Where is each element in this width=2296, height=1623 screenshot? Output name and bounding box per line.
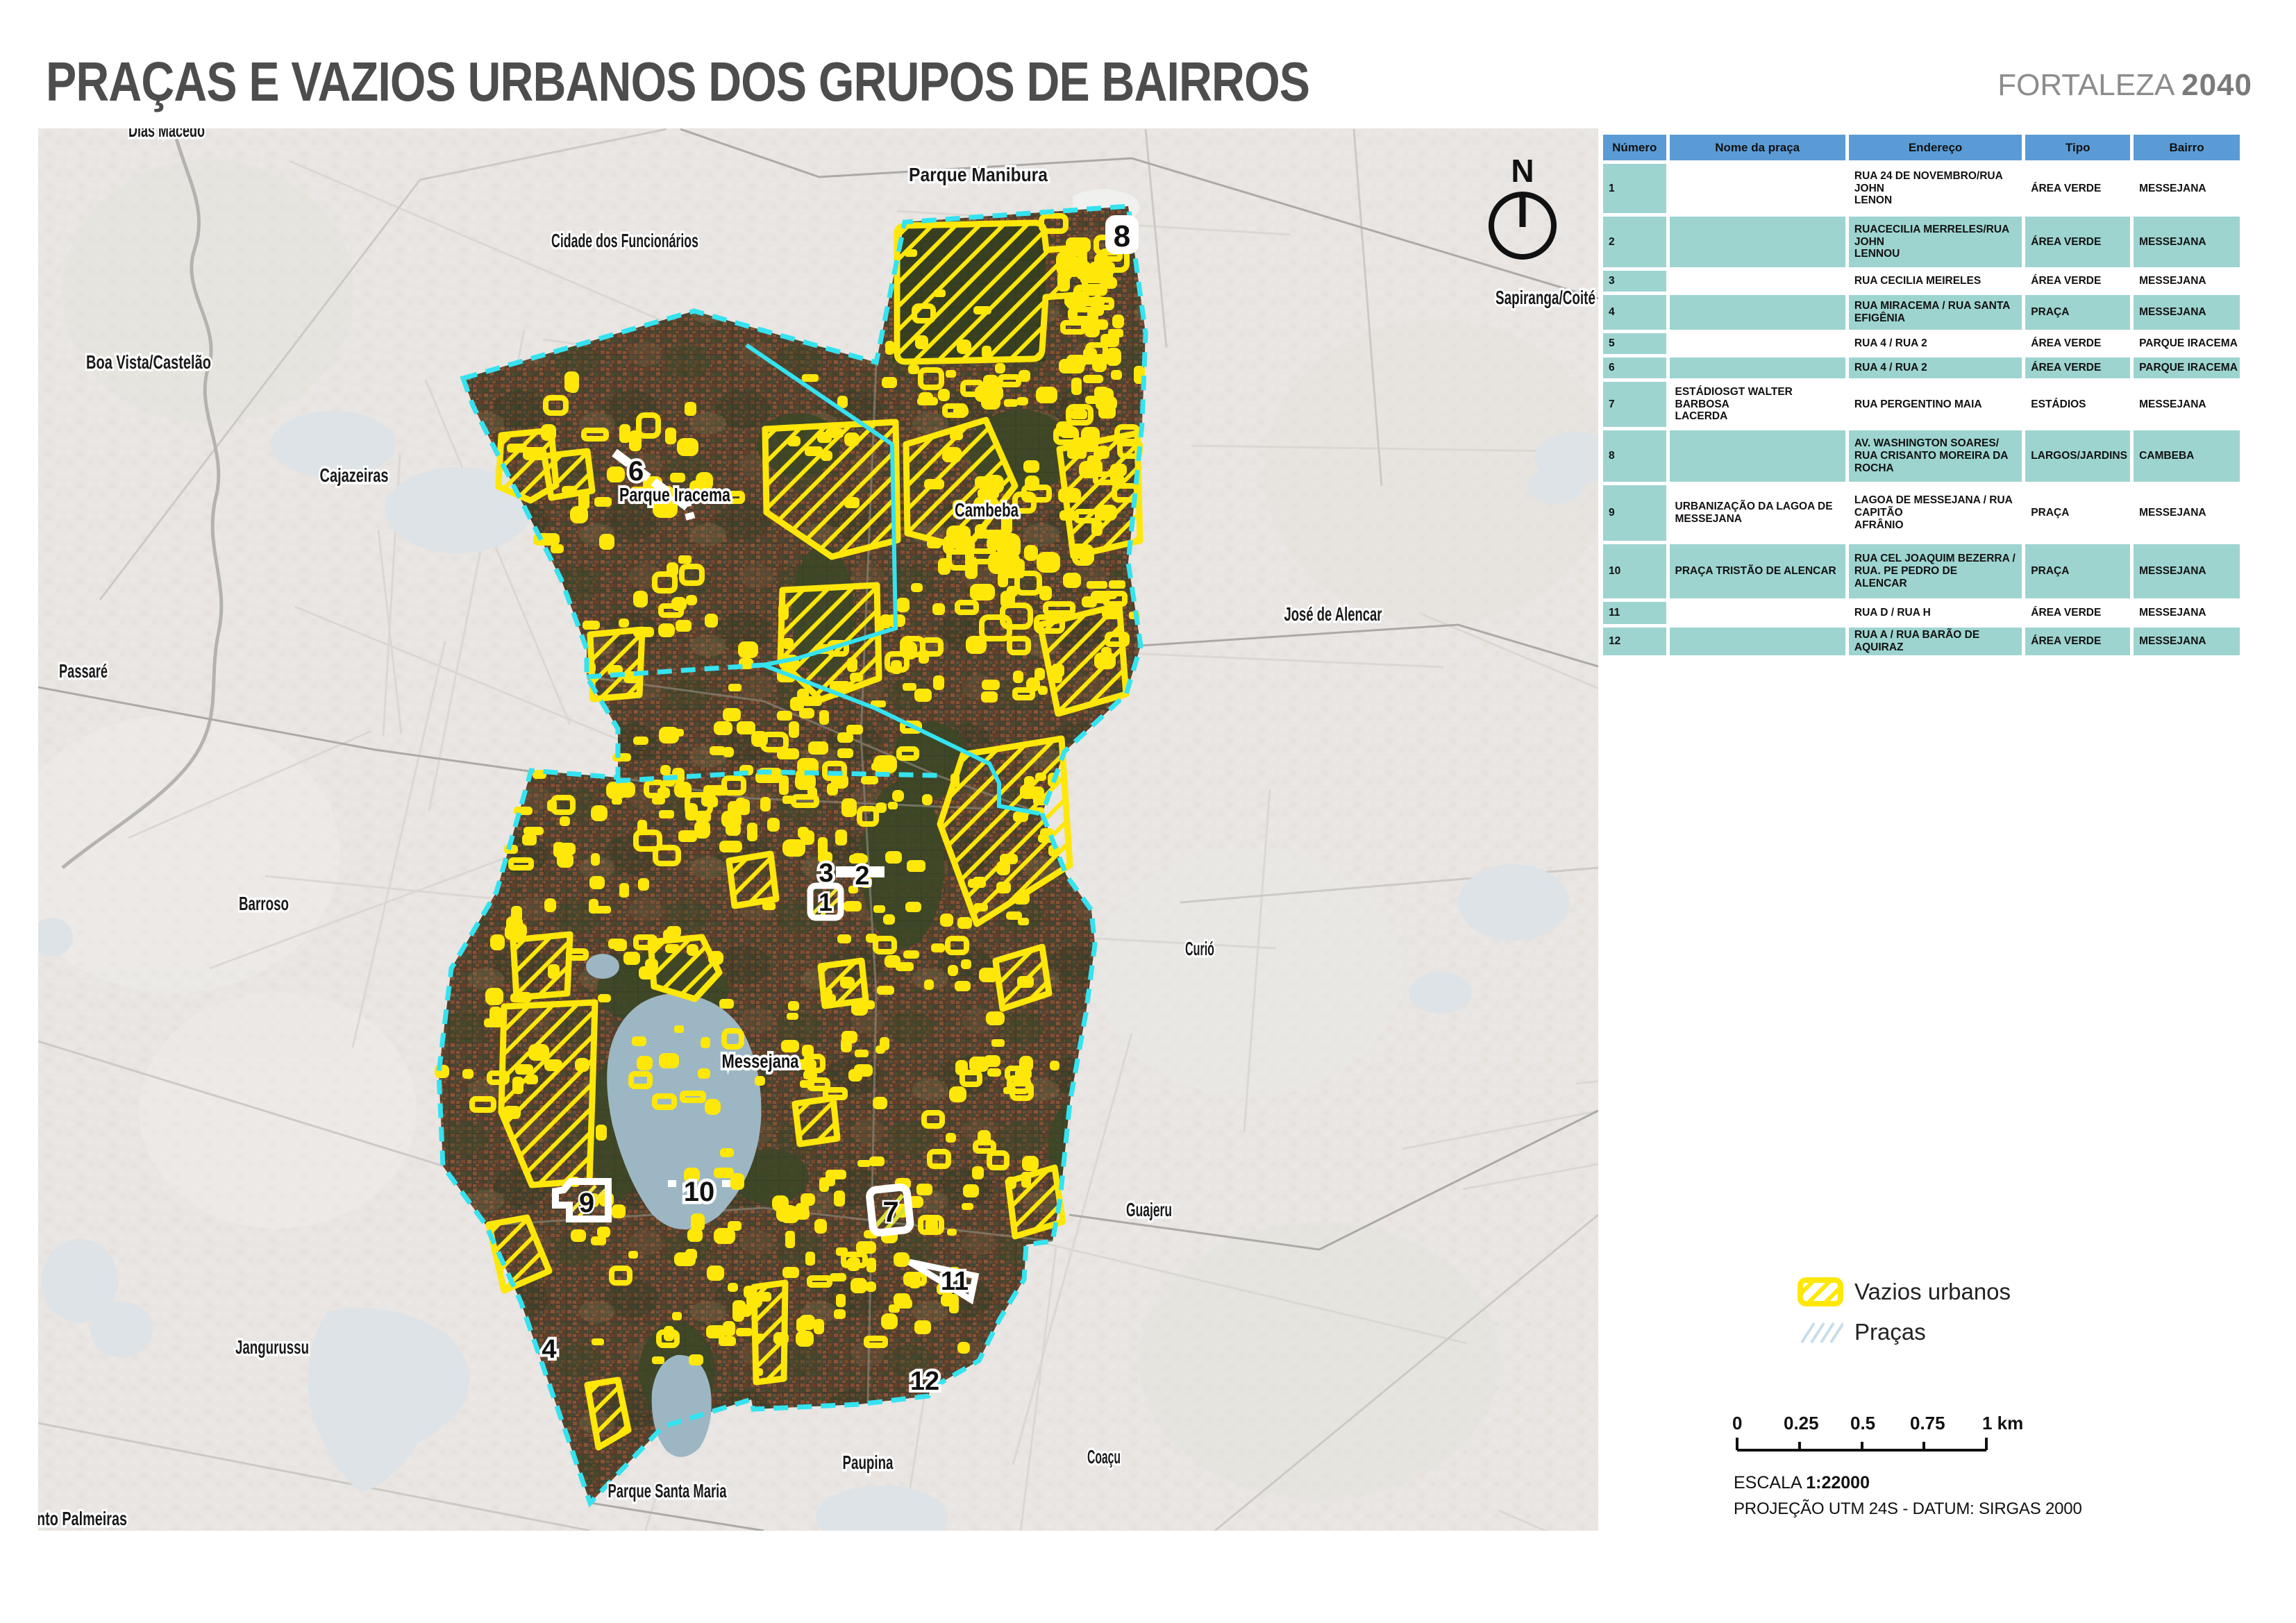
svg-text:nto Palmeiras: nto Palmeiras xyxy=(37,1508,127,1529)
svg-text:José de Alencar: José de Alencar xyxy=(1284,603,1382,625)
svg-text:Boa Vista/Castelão: Boa Vista/Castelão xyxy=(86,351,211,373)
svg-text:Messejana: Messejana xyxy=(722,1050,799,1072)
svg-text:2: 2 xyxy=(855,861,869,891)
svg-text:Sapiranga/Coité: Sapiranga/Coité xyxy=(1495,287,1595,308)
svg-text:Cajazeiras: Cajazeiras xyxy=(320,464,389,486)
svg-text:6: 6 xyxy=(628,456,644,487)
svg-text:Parque Iracema: Parque Iracema xyxy=(619,484,730,505)
svg-text:7: 7 xyxy=(882,1195,898,1228)
svg-text:Coaçu: Coaçu xyxy=(1087,1446,1121,1468)
svg-text:Jangurussu: Jangurussu xyxy=(235,1336,309,1358)
svg-text:11: 11 xyxy=(941,1267,969,1296)
svg-text:1: 1 xyxy=(819,888,832,916)
svg-text:9: 9 xyxy=(579,1188,594,1218)
svg-text:Guajeru: Guajeru xyxy=(1126,1199,1172,1220)
svg-text:10: 10 xyxy=(684,1177,715,1207)
svg-text:4: 4 xyxy=(542,1335,556,1364)
svg-text:Cidade dos Funcionários: Cidade dos Funcionários xyxy=(551,230,698,251)
svg-text:Dias Macedo: Dias Macedo xyxy=(128,119,205,141)
svg-text:Paupina: Paupina xyxy=(843,1452,894,1473)
svg-text:12: 12 xyxy=(910,1367,939,1396)
svg-text:Barroso: Barroso xyxy=(239,893,289,914)
svg-text:8: 8 xyxy=(1114,219,1130,253)
svg-text:Curió: Curió xyxy=(1185,938,1214,959)
svg-text:Passaré: Passaré xyxy=(59,660,108,682)
svg-text:Parque Manibura: Parque Manibura xyxy=(909,164,1048,185)
svg-text:Parque Santa Maria: Parque Santa Maria xyxy=(608,1480,727,1502)
svg-text:Cambeba: Cambeba xyxy=(955,499,1019,521)
svg-text:N: N xyxy=(1511,153,1534,189)
